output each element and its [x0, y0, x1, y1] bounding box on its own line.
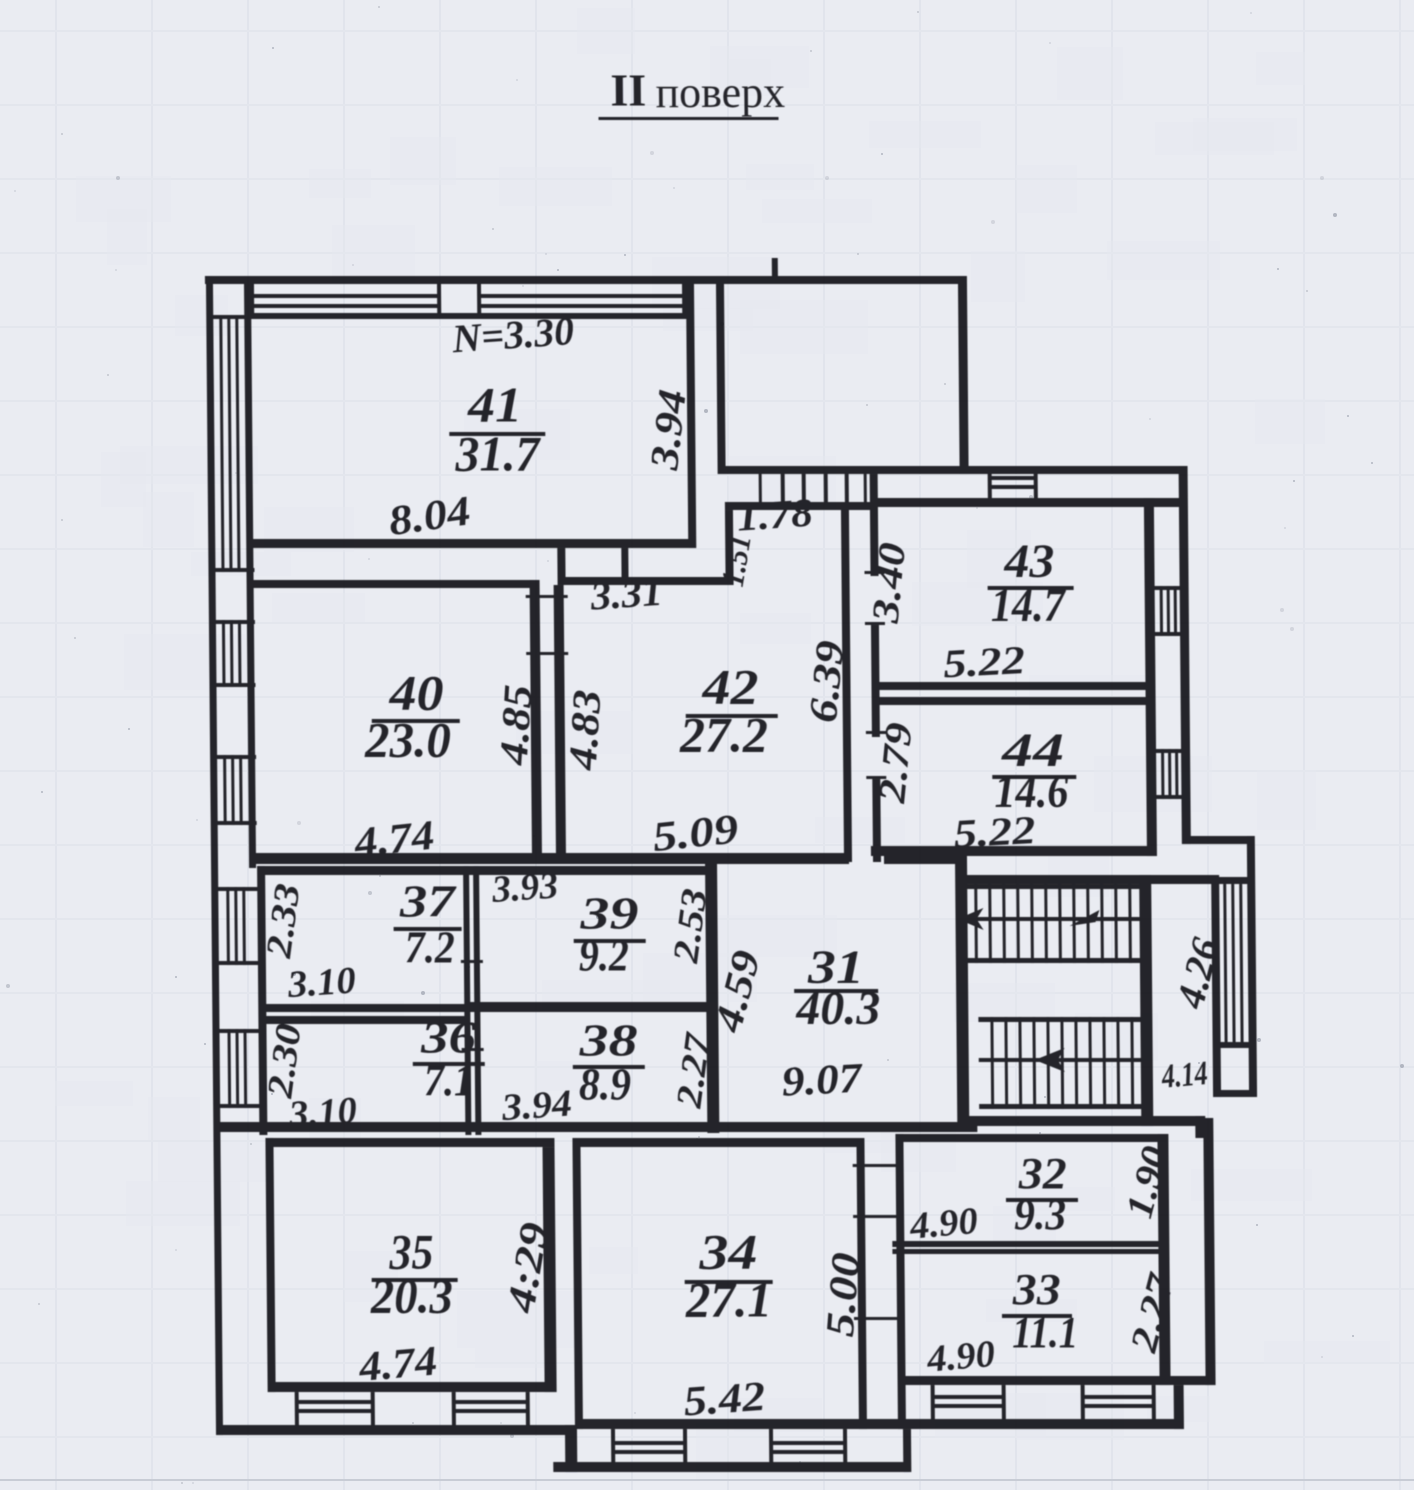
- svg-text:40.3: 40.3: [795, 982, 880, 1035]
- svg-text:8.9: 8.9: [579, 1059, 631, 1110]
- svg-text:9.2: 9.2: [579, 930, 629, 981]
- svg-text:3.94: 3.94: [641, 387, 695, 473]
- svg-text:14.7: 14.7: [991, 579, 1067, 632]
- svg-text:31.7: 31.7: [454, 425, 541, 481]
- svg-text:23.0: 23.0: [364, 711, 451, 767]
- svg-text:поверх: поверх: [655, 68, 785, 117]
- svg-text:4.90: 4.90: [924, 1333, 997, 1381]
- svg-text:3.40: 3.40: [864, 541, 914, 626]
- svg-text:3.10: 3.10: [285, 959, 357, 1006]
- svg-text:3.10: 3.10: [286, 1089, 358, 1136]
- svg-text:N=3.30: N=3.30: [450, 308, 576, 361]
- svg-text:4.74: 4.74: [356, 1338, 439, 1391]
- svg-text:33: 33: [1011, 1265, 1061, 1314]
- svg-text:5.00: 5.00: [817, 1251, 868, 1339]
- svg-text:37: 37: [398, 876, 457, 927]
- svg-text:20.3: 20.3: [370, 1267, 453, 1323]
- svg-text:ІІ: ІІ: [610, 65, 646, 116]
- svg-text:9.3: 9.3: [1014, 1190, 1066, 1239]
- svg-text:6.39: 6.39: [800, 638, 853, 724]
- svg-text:2.79: 2.79: [871, 721, 921, 806]
- svg-text:7.2: 7.2: [405, 922, 455, 973]
- svg-text:4.14: 4.14: [1159, 1055, 1209, 1096]
- svg-text:3.94: 3.94: [499, 1082, 573, 1129]
- svg-text:27.2: 27.2: [679, 706, 768, 762]
- svg-text:4.90: 4.90: [907, 1200, 980, 1248]
- svg-text:3.93: 3.93: [489, 864, 559, 911]
- svg-text:11.1: 11.1: [1012, 1308, 1078, 1357]
- svg-text:1.78: 1.78: [735, 490, 814, 540]
- svg-text:9.07: 9.07: [780, 1055, 865, 1105]
- svg-text:4.74: 4.74: [351, 813, 437, 867]
- svg-text:41: 41: [467, 376, 523, 432]
- svg-text:5.22: 5.22: [952, 807, 1037, 856]
- svg-text:5.22: 5.22: [942, 637, 1027, 686]
- svg-text:4.83: 4.83: [560, 688, 610, 772]
- svg-text:7.1: 7.1: [424, 1055, 474, 1106]
- svg-text:27.1: 27.1: [685, 1271, 772, 1327]
- svg-text:5.42: 5.42: [682, 1374, 767, 1426]
- svg-text:3.31: 3.31: [588, 569, 664, 619]
- svg-text:4.85: 4.85: [491, 683, 541, 767]
- svg-text:5.09: 5.09: [650, 806, 741, 861]
